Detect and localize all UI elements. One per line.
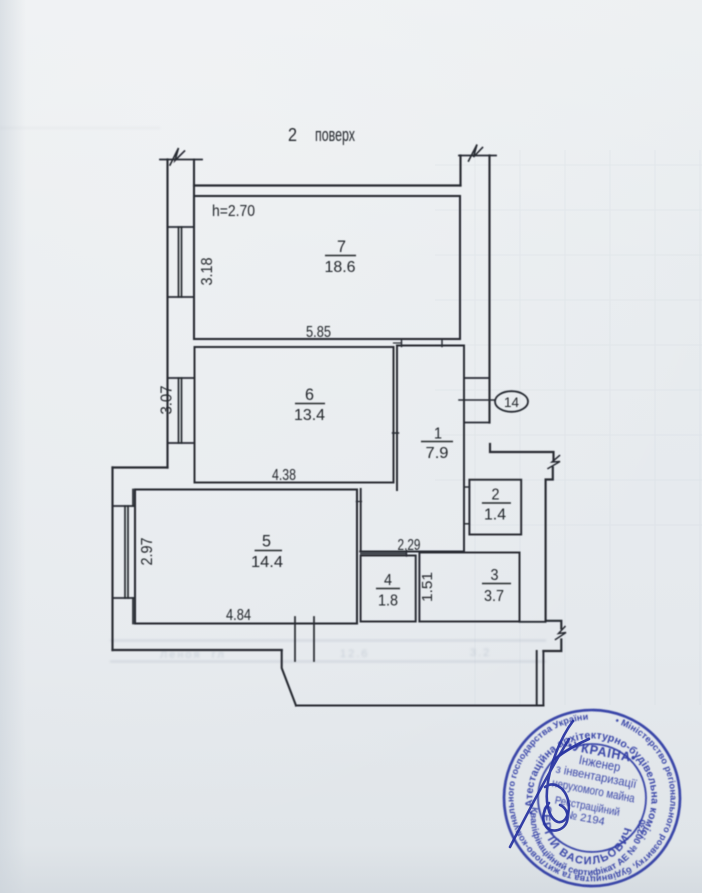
svg-text:14: 14 (504, 394, 519, 410)
svg-text:1.51: 1.51 (419, 572, 436, 602)
svg-text:12.6: 12.6 (340, 648, 369, 660)
svg-text:2: 2 (492, 487, 500, 504)
svg-text:14.4: 14.4 (251, 554, 283, 571)
svg-text:7: 7 (337, 237, 346, 256)
svg-text:4.38: 4.38 (272, 467, 296, 484)
svg-text:3.7: 3.7 (484, 588, 504, 605)
svg-text:6: 6 (305, 385, 314, 404)
svg-text:13.4: 13.4 (294, 407, 325, 424)
svg-text:4.84: 4.84 (226, 607, 251, 624)
svg-text:7.9: 7.9 (426, 445, 449, 462)
svg-text:3: 3 (491, 567, 499, 584)
svg-text:2.29: 2.29 (398, 537, 421, 554)
svg-text:1: 1 (434, 426, 442, 443)
svg-text:18.6: 18.6 (325, 259, 356, 276)
svg-text:4: 4 (384, 572, 392, 589)
svg-text:2: 2 (288, 125, 297, 145)
svg-text:h=2.70: h=2.70 (212, 203, 255, 220)
svg-text:1.4: 1.4 (484, 507, 506, 524)
svg-text:5.85: 5.85 (306, 324, 331, 341)
svg-text:2.97: 2.97 (139, 537, 156, 565)
svg-text:3.18: 3.18 (199, 257, 216, 285)
svg-text:поверх: поверх (315, 125, 355, 145)
svg-text:1.8: 1.8 (378, 593, 398, 610)
svg-text:3.2: 3.2 (470, 647, 491, 659)
svg-text:3.07: 3.07 (159, 385, 176, 414)
svg-text:5: 5 (262, 532, 271, 551)
